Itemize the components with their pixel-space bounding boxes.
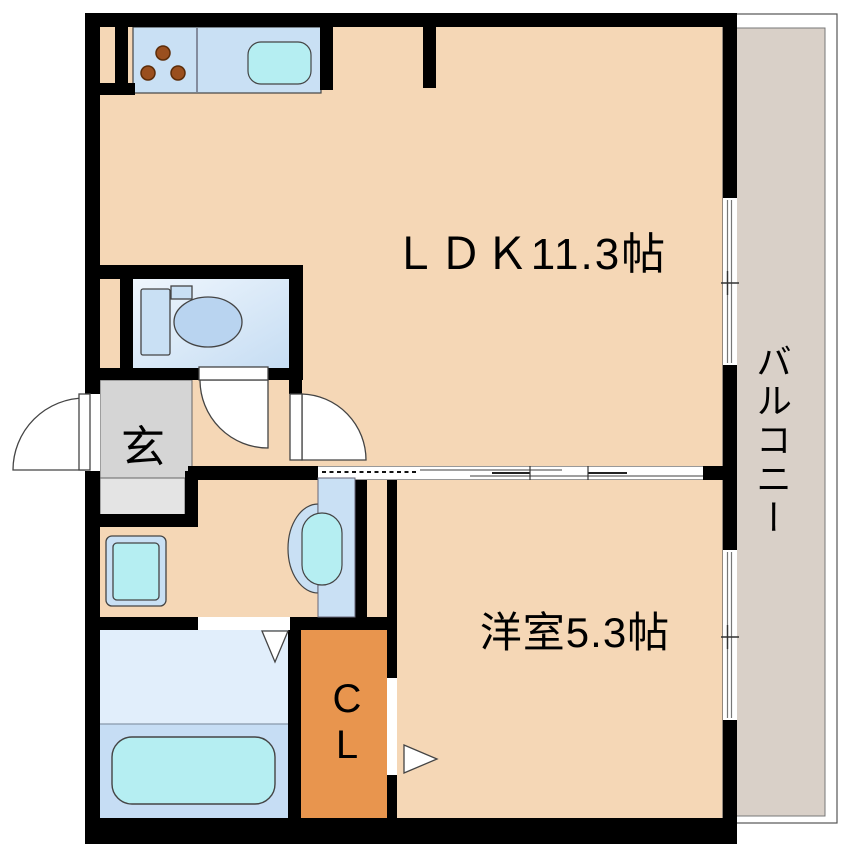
kitchen-sink-icon (248, 42, 311, 84)
balcony-label: バルコニー (744, 320, 790, 560)
door-swing-arc (13, 398, 85, 470)
front-door (13, 394, 90, 470)
sliding-door (318, 466, 703, 480)
closet-label: C L (321, 676, 373, 768)
floorplan: ＬＤＫ11.3帖 洋室5.3帖 玄 C L バルコニー (0, 0, 846, 846)
bathtub-icon (112, 737, 275, 804)
closet-label-c: C (321, 676, 373, 722)
washing-machine-icon (106, 536, 166, 606)
window-ldk (721, 198, 739, 365)
ldk-room-label: ＬＤＫ11.3帖 (330, 232, 730, 278)
closet-label-l: L (321, 722, 373, 768)
western-room-label: 洋室5.3帖 (400, 611, 750, 655)
entrance-label: 玄 (118, 425, 168, 471)
kitchen-counter (133, 27, 321, 93)
